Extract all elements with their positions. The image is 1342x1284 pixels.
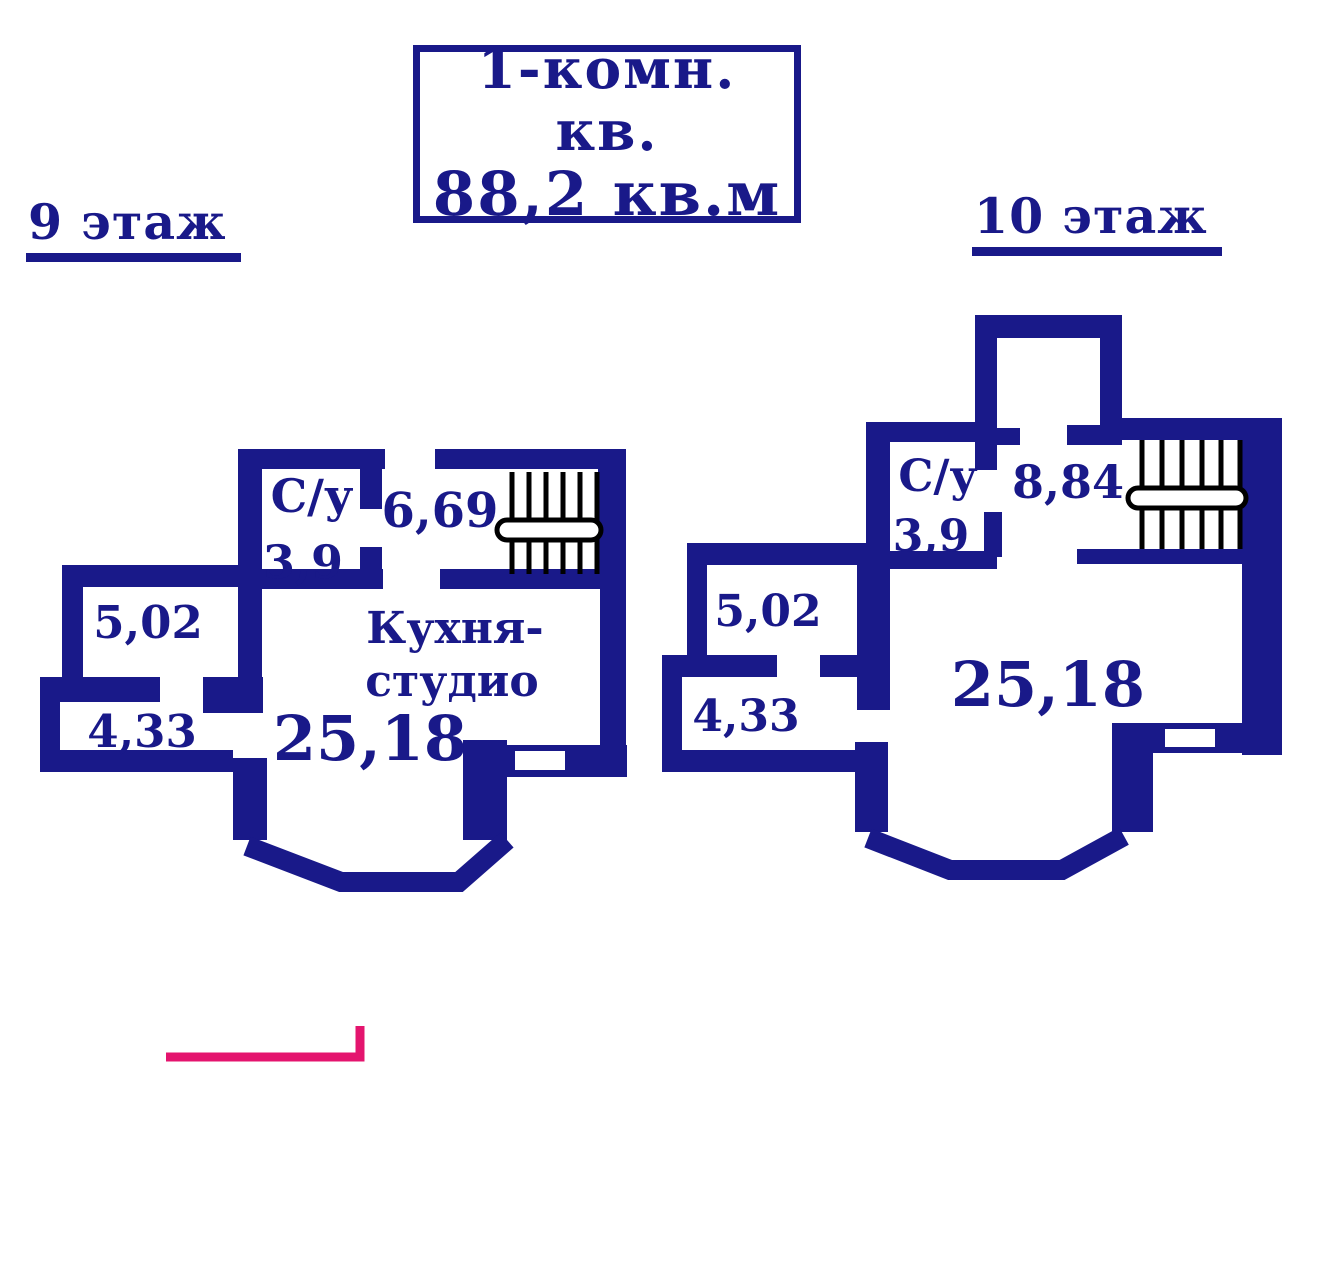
label-kitchen-name-1: Кухня- xyxy=(366,603,543,654)
room-labels-floor-9: С/у 3,9 6,69 5,02 4,33 Кухня- студио 25,… xyxy=(87,469,544,775)
label-room433-9: 4,33 xyxy=(87,705,197,758)
label-bathroom-area-9: 3,9 xyxy=(263,535,343,589)
stairs-floor-10 xyxy=(1128,440,1246,549)
label-room502-10: 5,02 xyxy=(714,586,821,637)
pink-annotation-line xyxy=(166,1026,360,1057)
floor-plan-sheet: 1-комн. кв. 88,2 кв.м 9 этаж 10 этаж xyxy=(0,0,1342,1284)
plan-floor-9: С/у 3,9 6,69 5,02 4,33 Кухня- студио 25,… xyxy=(40,449,627,882)
label-kitchen-area-9: 25,18 xyxy=(273,702,467,775)
floor-plans-drawing: С/у 3,9 6,69 5,02 4,33 Кухня- студио 25,… xyxy=(0,0,1342,1284)
label-room433-10: 4,33 xyxy=(692,691,799,742)
label-main-area-10: 25,18 xyxy=(951,648,1145,721)
stairs-floor-9 xyxy=(497,472,601,574)
bay-window-10 xyxy=(868,836,1124,870)
label-bathroom-9: С/у xyxy=(271,469,354,523)
label-kitchen-name-2: студио xyxy=(365,656,539,707)
label-hall-area-9: 6,69 xyxy=(382,483,499,539)
stairs-handrail-10 xyxy=(1128,488,1246,508)
label-room502-9: 5,02 xyxy=(93,596,203,649)
label-hall-area-10: 8,84 xyxy=(1012,455,1124,509)
plan-floor-10: С/у 3,9 8,84 5,02 4,33 25,18 xyxy=(662,315,1282,870)
stairs-handrail-9 xyxy=(497,520,601,540)
room-labels-floor-10: С/у 3,9 8,84 5,02 4,33 25,18 xyxy=(692,451,1145,742)
label-bathroom-10: С/у xyxy=(898,451,977,502)
label-bathroom-area-10: 3,9 xyxy=(893,511,970,562)
bay-window-9 xyxy=(247,840,507,882)
